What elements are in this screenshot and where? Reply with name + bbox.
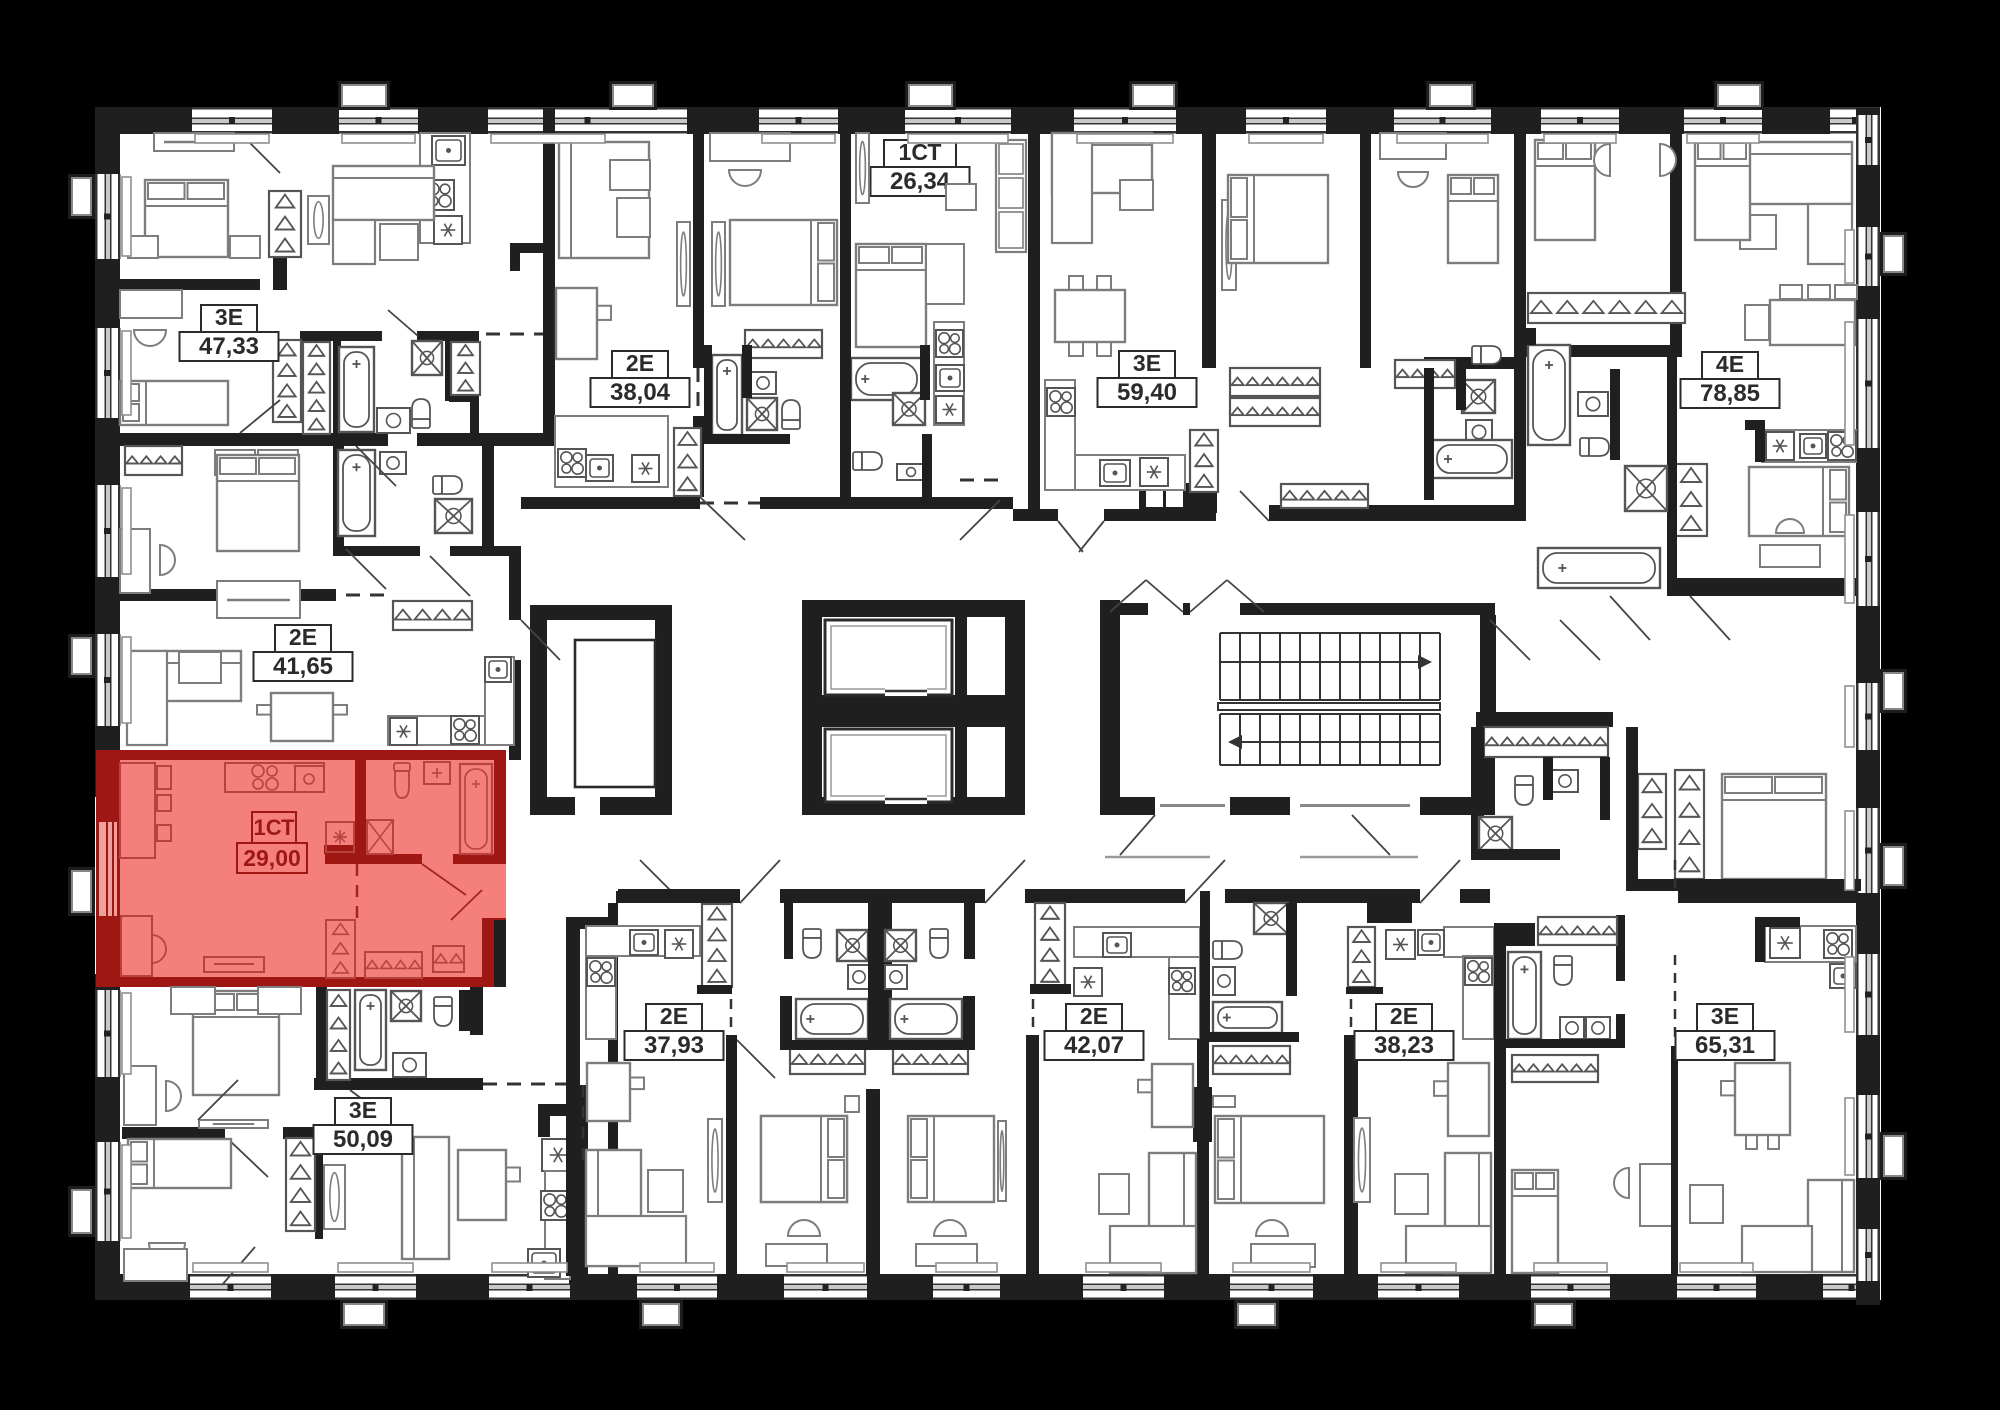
- svg-text:2Е: 2Е: [1080, 1003, 1108, 1029]
- svg-text:3Е: 3Е: [349, 1097, 377, 1123]
- svg-text:4Е: 4Е: [1716, 351, 1744, 377]
- svg-text:3Е: 3Е: [215, 304, 243, 330]
- svg-text:2Е: 2Е: [289, 624, 317, 650]
- svg-text:59,40: 59,40: [1117, 379, 1177, 406]
- svg-text:37,93: 37,93: [644, 1032, 704, 1059]
- svg-text:2Е: 2Е: [626, 350, 654, 376]
- svg-text:50,09: 50,09: [333, 1126, 393, 1153]
- svg-text:2Е: 2Е: [1390, 1003, 1418, 1029]
- svg-text:78,85: 78,85: [1700, 380, 1760, 407]
- svg-text:3Е: 3Е: [1133, 350, 1161, 376]
- svg-text:3Е: 3Е: [1711, 1003, 1739, 1029]
- svg-text:41,65: 41,65: [273, 653, 333, 680]
- svg-text:2Е: 2Е: [660, 1003, 688, 1029]
- svg-text:29,00: 29,00: [243, 845, 301, 871]
- svg-text:1СТ: 1СТ: [253, 815, 295, 840]
- svg-text:26,34: 26,34: [890, 168, 951, 195]
- svg-text:65,31: 65,31: [1695, 1032, 1755, 1059]
- svg-text:38,23: 38,23: [1374, 1032, 1434, 1059]
- svg-text:42,07: 42,07: [1064, 1032, 1124, 1059]
- svg-text:47,33: 47,33: [199, 333, 259, 360]
- svg-text:38,04: 38,04: [610, 379, 671, 406]
